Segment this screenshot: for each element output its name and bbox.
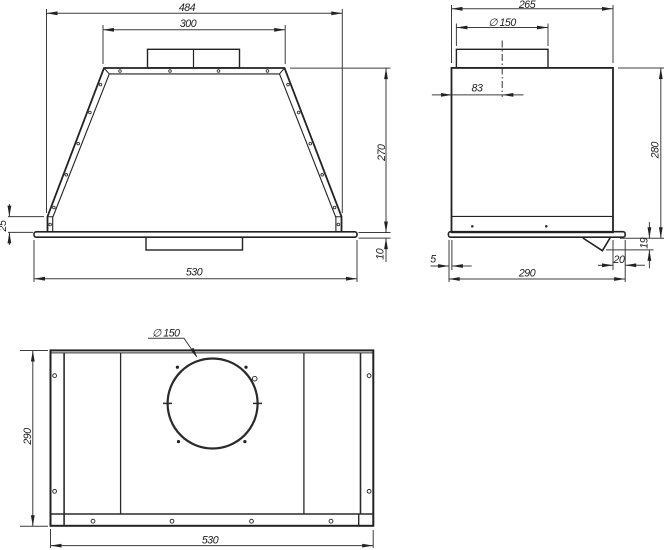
svg-text:270: 270 [376,144,388,162]
svg-text:280: 280 [649,141,661,159]
svg-text:530: 530 [186,267,203,279]
svg-text:290: 290 [22,428,34,446]
svg-text:484: 484 [179,2,196,14]
svg-text:300: 300 [180,18,197,30]
svg-text:265: 265 [518,0,536,11]
svg-text:20: 20 [613,254,625,266]
svg-text:10: 10 [375,248,387,259]
svg-text:290: 290 [518,267,536,279]
svg-text:25: 25 [0,220,9,232]
svg-text:530: 530 [202,535,219,547]
svg-text:19: 19 [639,237,651,248]
svg-text:∅ 150: ∅ 150 [488,17,516,29]
svg-text:5: 5 [430,253,436,265]
svg-text:83: 83 [472,83,483,95]
svg-text:∅ 150: ∅ 150 [152,327,180,339]
